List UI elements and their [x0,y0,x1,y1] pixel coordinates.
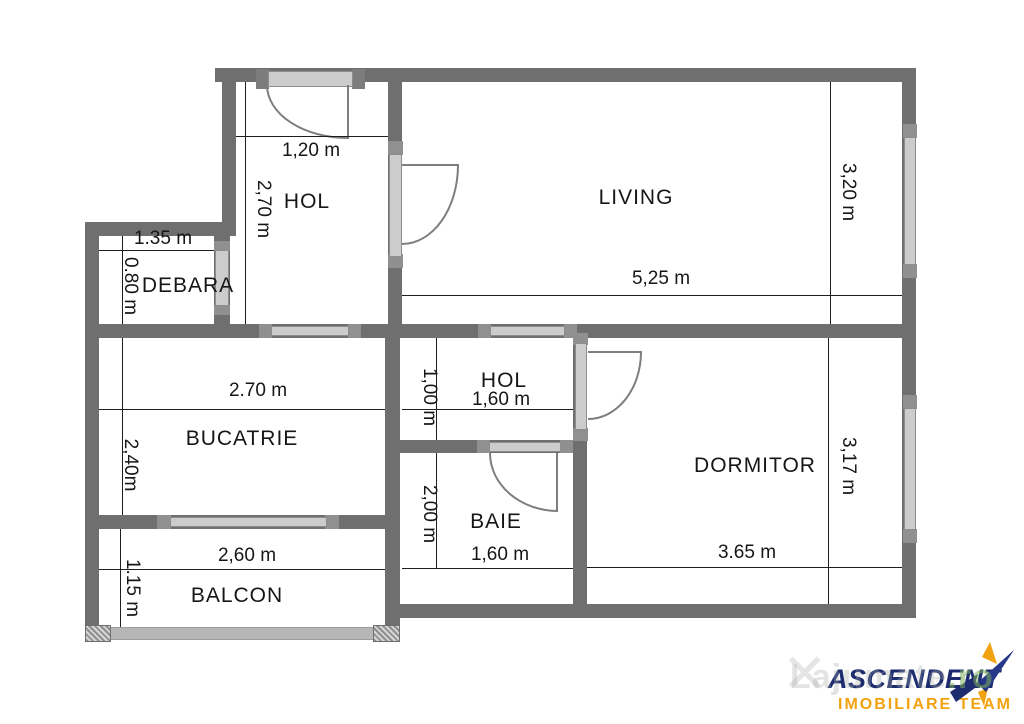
door-swing-arc [489,453,558,512]
window-cap [903,124,917,138]
room-label-dormitor: DORMITOR [694,454,816,478]
window-living-hol2 [490,326,565,336]
dimension-label: 1,60 m [471,544,529,566]
window-cap [903,529,917,543]
room-label-bucatrie: BUCATRIE [186,427,299,451]
dimension-label: 1.35 m [134,228,192,250]
dimension-label: 1,20 m [282,140,340,162]
dimension-label: 2,00 m [418,485,440,543]
room-label-living: LIVING [599,186,674,210]
dimension-label: 1,60 m [472,389,530,411]
balcony-corner-post [85,625,111,642]
door-leaf [347,85,349,139]
agency-logo: ✕ Lajumate.ro ASCENDENT IMOBILIARE TEAM [780,640,1024,724]
wall-left [85,222,99,642]
window-living [904,137,916,265]
dimension-label: 5,25 m [632,268,690,290]
watermark: Lajumate.ro [790,658,994,697]
balcony-corner-post [373,625,400,642]
dimension-label: 0.80 m [119,257,141,315]
dimension-label: 1.15 m [121,559,143,617]
floor-plan: HOL LIVING DEBARA BUCATRIE HOL BAIE DORM… [0,0,1024,724]
dimension-line [402,568,573,569]
room-label-baie: BAIE [470,510,522,534]
window-dormitor [904,408,916,530]
wall-bottom [395,604,916,618]
dimension-label: 2,70 m [252,180,274,238]
window-cap [903,395,917,409]
door-swing-arc [402,165,459,245]
baie-door [489,442,561,452]
watermark-suffix: .ro [947,658,993,696]
dimension-label: 3,17 m [837,437,859,495]
dimension-line [99,250,214,251]
window-cap [903,264,917,278]
dimension-line [245,82,246,324]
door-jamb [214,305,230,315]
dimension-line [587,567,902,568]
dimension-label: 2.70 m [229,380,287,402]
living-door [389,154,402,257]
door-swing-arc [588,352,642,420]
dimension-label: 2,40m [119,439,141,492]
dimension-line [402,295,902,296]
door-jamb [352,69,365,89]
room-label-balcon: BALCON [191,584,283,608]
window-cap [348,324,361,338]
dimension-line [99,409,385,410]
dormitor-door [575,343,587,430]
window-hol1-bucatrie [271,326,349,336]
wall-hol1-left [222,68,236,236]
dimension-label: 1,00 m [418,368,440,426]
dimension-label: 3,20 m [837,163,859,221]
dimension-label: 3.65 m [718,542,776,564]
window-bucatrie-balcon [170,517,327,527]
watermark-text: Lajumate [790,658,947,696]
wall-bucatrie-right [385,338,400,642]
balcony-railing [85,627,400,640]
dimension-label: 2,60 m [218,545,276,567]
window-cap [325,515,339,529]
dimension-line [828,338,829,604]
room-label-debara: DEBARA [142,274,234,298]
window-cap [157,515,171,529]
room-label-hol1: HOL [284,190,330,214]
door-jamb [388,141,403,155]
door-swing-arc [266,85,348,139]
dimension-line [236,136,388,137]
dimension-line [830,82,831,324]
door-jamb [560,440,573,453]
